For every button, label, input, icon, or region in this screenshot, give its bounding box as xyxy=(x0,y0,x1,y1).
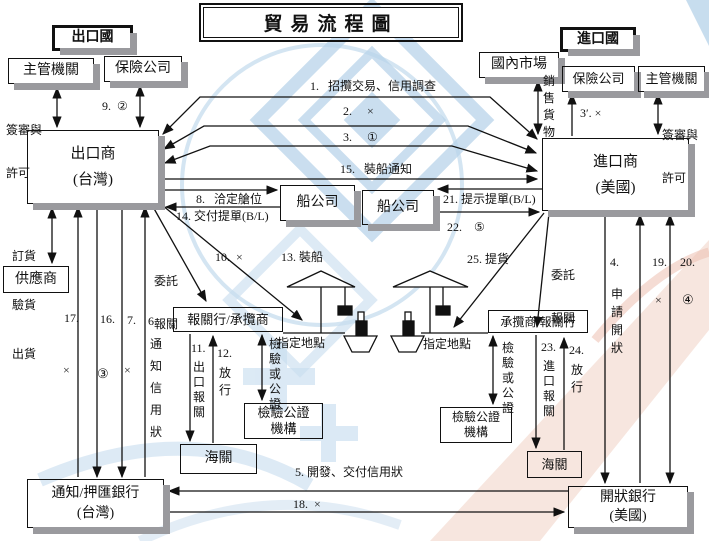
step-2-label: 2. × xyxy=(343,104,374,118)
advising-bank-box: 通知/押匯銀行 (台灣) xyxy=(27,479,164,528)
designated-left-label: 指定地點 xyxy=(277,336,325,350)
insurance-left-box: 保險公司 xyxy=(104,56,182,82)
step-24-label: 24. xyxy=(569,343,584,357)
step-3prime-label: 3′. × xyxy=(580,106,601,120)
step-7-mark: × xyxy=(124,363,131,377)
step-3-label: 3. ① xyxy=(343,130,378,144)
step-24-text: 放行 xyxy=(570,362,584,396)
export-country-box: 出口國 xyxy=(52,25,133,51)
step-5-label: 5. 開發、交付信用狀 xyxy=(295,465,403,479)
step-18-label: 18. × xyxy=(293,497,321,511)
trade-flow-diagram: 貿易流程圖 出口國 進口國 主管機關 保險公司 國內市場 保險公司 主管機關 出… xyxy=(0,0,709,541)
step-4-label: 4. xyxy=(610,255,619,269)
step-22-label: 22. ⑤ xyxy=(447,220,485,234)
step-17-mark: × xyxy=(63,363,70,377)
step-7-label: 7. xyxy=(127,313,136,327)
step-19-label: 19. xyxy=(652,255,667,269)
step-23-text: 進口報關 xyxy=(542,359,556,419)
step-14-label: 14. 交付提單(B/L) xyxy=(176,209,269,223)
license-right-label: 簽審與 許可 xyxy=(662,100,698,214)
exporter-box: 出口商 (台灣) xyxy=(27,130,159,204)
sell-goods-label: 銷售貨物 xyxy=(542,73,556,141)
order-check-ship-label: 訂貨 驗貨 出貨 xyxy=(12,215,36,396)
shipping-company-left-box: 船公司 xyxy=(280,185,355,221)
insurance-right-box: 保險公司 xyxy=(562,66,635,92)
diagram-title: 貿易流程圖 xyxy=(203,7,459,38)
authority-left-box: 主管機關 xyxy=(8,58,94,84)
import-country-box: 進口國 xyxy=(560,27,636,52)
step-20-label: 20. xyxy=(680,255,695,269)
entrust-right-label: 委託 報關 xyxy=(551,240,575,354)
cargo-ship-left-icon xyxy=(344,312,377,352)
step-25-label: 25. 提貨 xyxy=(467,252,509,266)
step-9-label: 9. ② xyxy=(102,99,128,113)
step-17-label: 17. xyxy=(64,311,79,325)
step-6-text: 通知信用狀 xyxy=(149,333,163,443)
harbor-crane-right-icon xyxy=(393,271,468,333)
step-12-text: 放行 xyxy=(218,365,232,399)
step-12-label: 12. xyxy=(217,346,232,360)
step-10-label: 10. × xyxy=(215,250,243,264)
step-11-text: 出口報關 xyxy=(192,360,206,420)
step-1-label: 1. 招攬交易、信用調查 xyxy=(310,79,436,93)
diagram-title-text: 貿易流程圖 xyxy=(263,9,398,36)
cargo-ship-right-icon xyxy=(391,312,424,352)
step-16-mark: ③ xyxy=(97,367,109,381)
inspection-agency-left-box: 檢驗公證 機構 xyxy=(244,403,323,439)
broker-left-box: 報關行/承攬商 xyxy=(173,307,283,332)
step-8-label: 8. 洽定艙位 xyxy=(196,192,262,206)
issuing-bank-box: 開狀銀行 (美國) xyxy=(568,486,688,528)
step-4-text: 申請開狀 xyxy=(610,285,624,357)
customs-right-box: 海關 xyxy=(527,451,582,478)
step-21-label: 21. 提示提單(B/L) xyxy=(443,192,536,206)
step-6-label: 6. xyxy=(148,314,157,328)
customs-left-box: 海關 xyxy=(180,444,257,474)
harbor-crane-left-icon xyxy=(287,271,355,333)
step-16-label: 16. xyxy=(100,312,115,326)
step-11-label: 11. xyxy=(191,341,206,355)
step-15-label: 15. 裝船通知 xyxy=(340,162,412,176)
inspect-right-label: 檢驗或公證 xyxy=(501,341,515,416)
shipping-company-right-box: 船公司 xyxy=(362,190,434,225)
step-20-mark: ④ xyxy=(682,293,694,307)
logo-cross-icon xyxy=(243,341,358,462)
designated-right-label: 指定地點 xyxy=(423,337,471,351)
authority-right-box: 主管機關 xyxy=(638,66,705,92)
license-left-label: 簽審與 許可 xyxy=(6,95,42,209)
step-13-label: 13. 裝船 xyxy=(281,250,323,264)
step-19-mark: × xyxy=(655,293,662,307)
step-23-label: 23. xyxy=(541,340,556,354)
